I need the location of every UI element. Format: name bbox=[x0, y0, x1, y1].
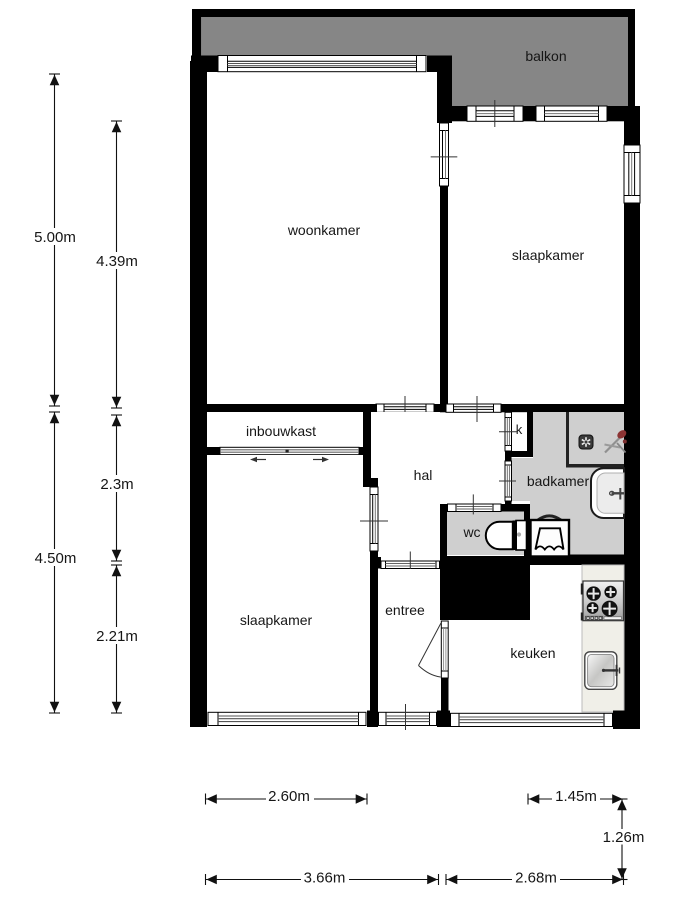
svg-text:k: k bbox=[516, 422, 523, 437]
svg-text:4.39m: 4.39m bbox=[96, 253, 138, 270]
svg-text:woonkamer: woonkamer bbox=[287, 222, 361, 238]
svg-text:keuken: keuken bbox=[510, 645, 555, 661]
svg-text:5.00m: 5.00m bbox=[34, 229, 76, 246]
svg-text:1.45m: 1.45m bbox=[555, 788, 597, 805]
svg-text:entree: entree bbox=[385, 602, 425, 618]
svg-text:1.26m: 1.26m bbox=[603, 829, 645, 846]
svg-text:2.3m: 2.3m bbox=[100, 476, 133, 493]
svg-text:slaapkamer: slaapkamer bbox=[512, 247, 585, 263]
svg-text:hal: hal bbox=[414, 467, 433, 483]
svg-text:slaapkamer: slaapkamer bbox=[240, 612, 313, 628]
svg-text:4.50m: 4.50m bbox=[35, 550, 77, 567]
svg-text:badkamer: badkamer bbox=[527, 473, 590, 489]
svg-text:2.21m: 2.21m bbox=[96, 628, 138, 645]
svg-text:2.60m: 2.60m bbox=[268, 788, 310, 805]
svg-text:wc: wc bbox=[462, 524, 480, 540]
svg-text:2.68m: 2.68m bbox=[515, 870, 557, 887]
svg-text:balkon: balkon bbox=[525, 48, 566, 64]
svg-text:3.66m: 3.66m bbox=[304, 870, 346, 887]
svg-text:inbouwkast: inbouwkast bbox=[246, 423, 316, 439]
